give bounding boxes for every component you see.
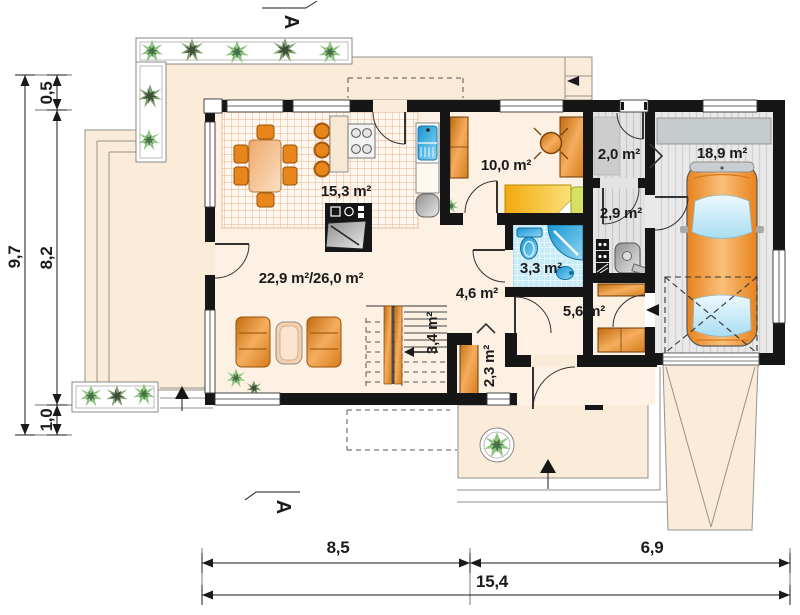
car-mirror bbox=[756, 226, 764, 233]
room-label-stairs: 3,4 m² bbox=[424, 312, 441, 354]
car bbox=[680, 162, 764, 346]
dining-chair bbox=[283, 167, 297, 185]
room-label-hall: 4,6 m² bbox=[456, 285, 498, 302]
front-door bbox=[620, 100, 648, 112]
dim-left-bottom: 1,0 bbox=[37, 409, 56, 432]
kitchen-worktop bbox=[416, 163, 439, 193]
planter-bottom-box bbox=[72, 382, 158, 412]
dim-bottom-total: 15,4 bbox=[476, 572, 509, 591]
dining-chair bbox=[257, 193, 274, 207]
room-label-vestibule: 2,3 m² bbox=[481, 345, 498, 387]
wardrobe bbox=[450, 117, 468, 178]
toilet bbox=[521, 237, 538, 259]
dining-chair bbox=[234, 145, 248, 163]
room-label-corridor: 5,6 m² bbox=[563, 303, 605, 320]
bar-stool bbox=[315, 162, 330, 177]
driveway bbox=[663, 365, 758, 530]
car-mirror bbox=[680, 226, 688, 233]
kitchen-appliance-column bbox=[416, 123, 439, 217]
section-label-bottom: A bbox=[272, 500, 294, 514]
section-label-top: A bbox=[280, 15, 302, 29]
toilet-tank bbox=[517, 228, 542, 237]
armchair bbox=[236, 317, 270, 367]
room-label-bathroom: 3,3 m² bbox=[520, 260, 562, 277]
car-windshield bbox=[692, 195, 752, 239]
dim-left-top: 0,5 bbox=[37, 82, 56, 105]
room-label-bedroom: 10,0 m² bbox=[481, 157, 531, 174]
dining-chair bbox=[234, 167, 248, 185]
desk bbox=[560, 117, 584, 177]
room-label-entry: 2,0 m² bbox=[598, 146, 640, 163]
room-label-garage: 18,9 m² bbox=[697, 145, 747, 162]
stove bbox=[348, 124, 375, 158]
room-label-living-room: 22,9 m²/26,0 m² bbox=[259, 270, 364, 287]
floor-plan-page: 15,3 m² 22,9 m²/26,0 m² 10,0 m² 2,0 m² 1… bbox=[0, 0, 800, 615]
stair-stringer bbox=[395, 306, 403, 384]
stair-stringer bbox=[384, 306, 392, 384]
fireplace bbox=[325, 203, 372, 252]
kitchen-counter bbox=[330, 116, 348, 172]
dining-chair bbox=[283, 145, 297, 163]
dim-bottom-right: 6,9 bbox=[641, 538, 664, 557]
garage-gate bbox=[663, 353, 759, 365]
fridge bbox=[416, 194, 439, 217]
room-label-boiler-room: 2,9 m² bbox=[600, 205, 642, 222]
dining-table bbox=[249, 140, 281, 192]
floor-plan-canvas: 15,3 m² 22,9 m²/26,0 m² 10,0 m² 2,0 m² 1… bbox=[0, 0, 800, 615]
vestibule-wardrobe bbox=[460, 338, 478, 394]
dim-left-middle: 8,2 bbox=[37, 247, 56, 270]
garage-shelf bbox=[657, 118, 771, 144]
room-label-kitchen-dining: 15,3 m² bbox=[321, 183, 371, 200]
armchair bbox=[307, 317, 341, 367]
wardrobe bbox=[598, 328, 645, 352]
dim-bottom-left: 8,5 bbox=[327, 538, 350, 557]
car-rear-window bbox=[693, 295, 751, 337]
corner-window bbox=[204, 99, 222, 113]
dining-chair bbox=[257, 125, 274, 139]
bar-stool bbox=[315, 143, 330, 158]
bar-stool bbox=[315, 124, 330, 139]
wardrobe bbox=[598, 284, 645, 296]
dim-left-total: 9,7 bbox=[5, 246, 24, 269]
